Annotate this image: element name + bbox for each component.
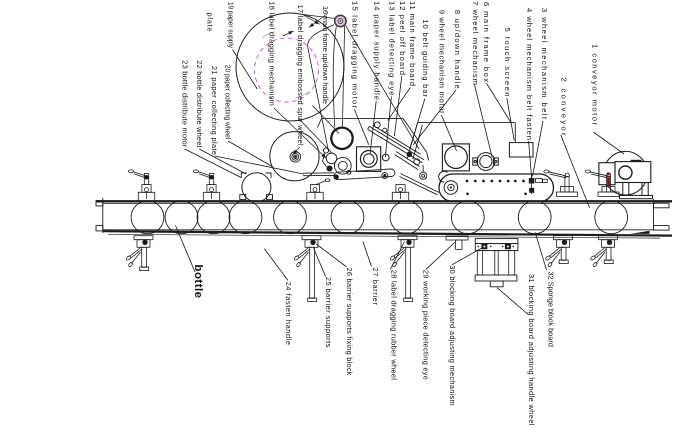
svg-text:17 label dragging embossed sp: 17 label dragging embossed spur wheel [296,5,305,146]
svg-text:5 touch screen: 5 touch screen [503,28,512,97]
svg-text:22 bottle distribute wheel: 22 bottle distribute wheel [195,60,204,147]
svg-text:1 conveyor motor: 1 conveyor motor [590,44,599,125]
svg-text:13 label detecting eye: 13 label detecting eye [388,1,397,96]
svg-text:24 fasten handle: 24 fasten handle [284,282,293,345]
svg-text:4 wheel mechanism belt fasten: 4 wheel mechanism belt fasten [525,8,534,140]
svg-text:28 label dragging rubber wheel: 28 label dragging rubber wheel [390,270,399,380]
svg-text:10 belt guiding bar: 10 belt guiding bar [421,19,430,97]
svg-text:29 working piece detecting eye: 29 working piece detecting eye [422,270,431,380]
svg-text:16 main frame up/down handle: 16 main frame up/down handle [321,6,330,104]
svg-text:19 paper supply: 19 paper supply [226,2,235,48]
svg-text:11 main frame board: 11 main frame board [408,1,417,86]
svg-text:27 barrier: 27 barrier [371,268,380,306]
svg-text:12 peel off board: 12 peel off board [398,1,407,75]
svg-text:31 blocking board adjusting ha: 31 blocking board adjusting handle wheel [527,274,536,426]
svg-text:bottle: bottle [192,265,204,299]
svg-text:plate: plate [205,13,214,32]
svg-text:26 barrier supports fixing blo: 26 barrier supports fixing block [345,268,354,376]
svg-text:8 up/down handle: 8 up/down handle [453,10,462,89]
svg-text:18 label dragging mechanism: 18 label dragging mechanism [267,1,276,106]
svg-text:7 wheel mechanism: 7 wheel mechanism [471,1,480,85]
svg-text:3 wheel mechanism belt: 3 wheel mechanism belt [540,8,549,120]
svg-text:21 paper collecting plate: 21 paper collecting plate [210,66,219,155]
svg-text:32 Sponge block board: 32 Sponge block board [547,271,556,347]
svg-text:30 blocking board adjusting me: 30 blocking board adjusting mechanism [448,265,457,406]
svg-text:6 main frame box: 6 main frame box [482,2,491,82]
svg-text:20 paper collecting wheel: 20 paper collecting wheel [224,65,233,140]
svg-text:9 wheel mechanism motor: 9 wheel mechanism motor [438,10,447,114]
svg-text:25 barrier supports: 25 barrier supports [324,277,333,348]
svg-text:14 paper supply handle: 14 paper supply handle [372,1,381,100]
svg-text:23 bottle distribute motor: 23 bottle distribute motor [181,60,190,148]
